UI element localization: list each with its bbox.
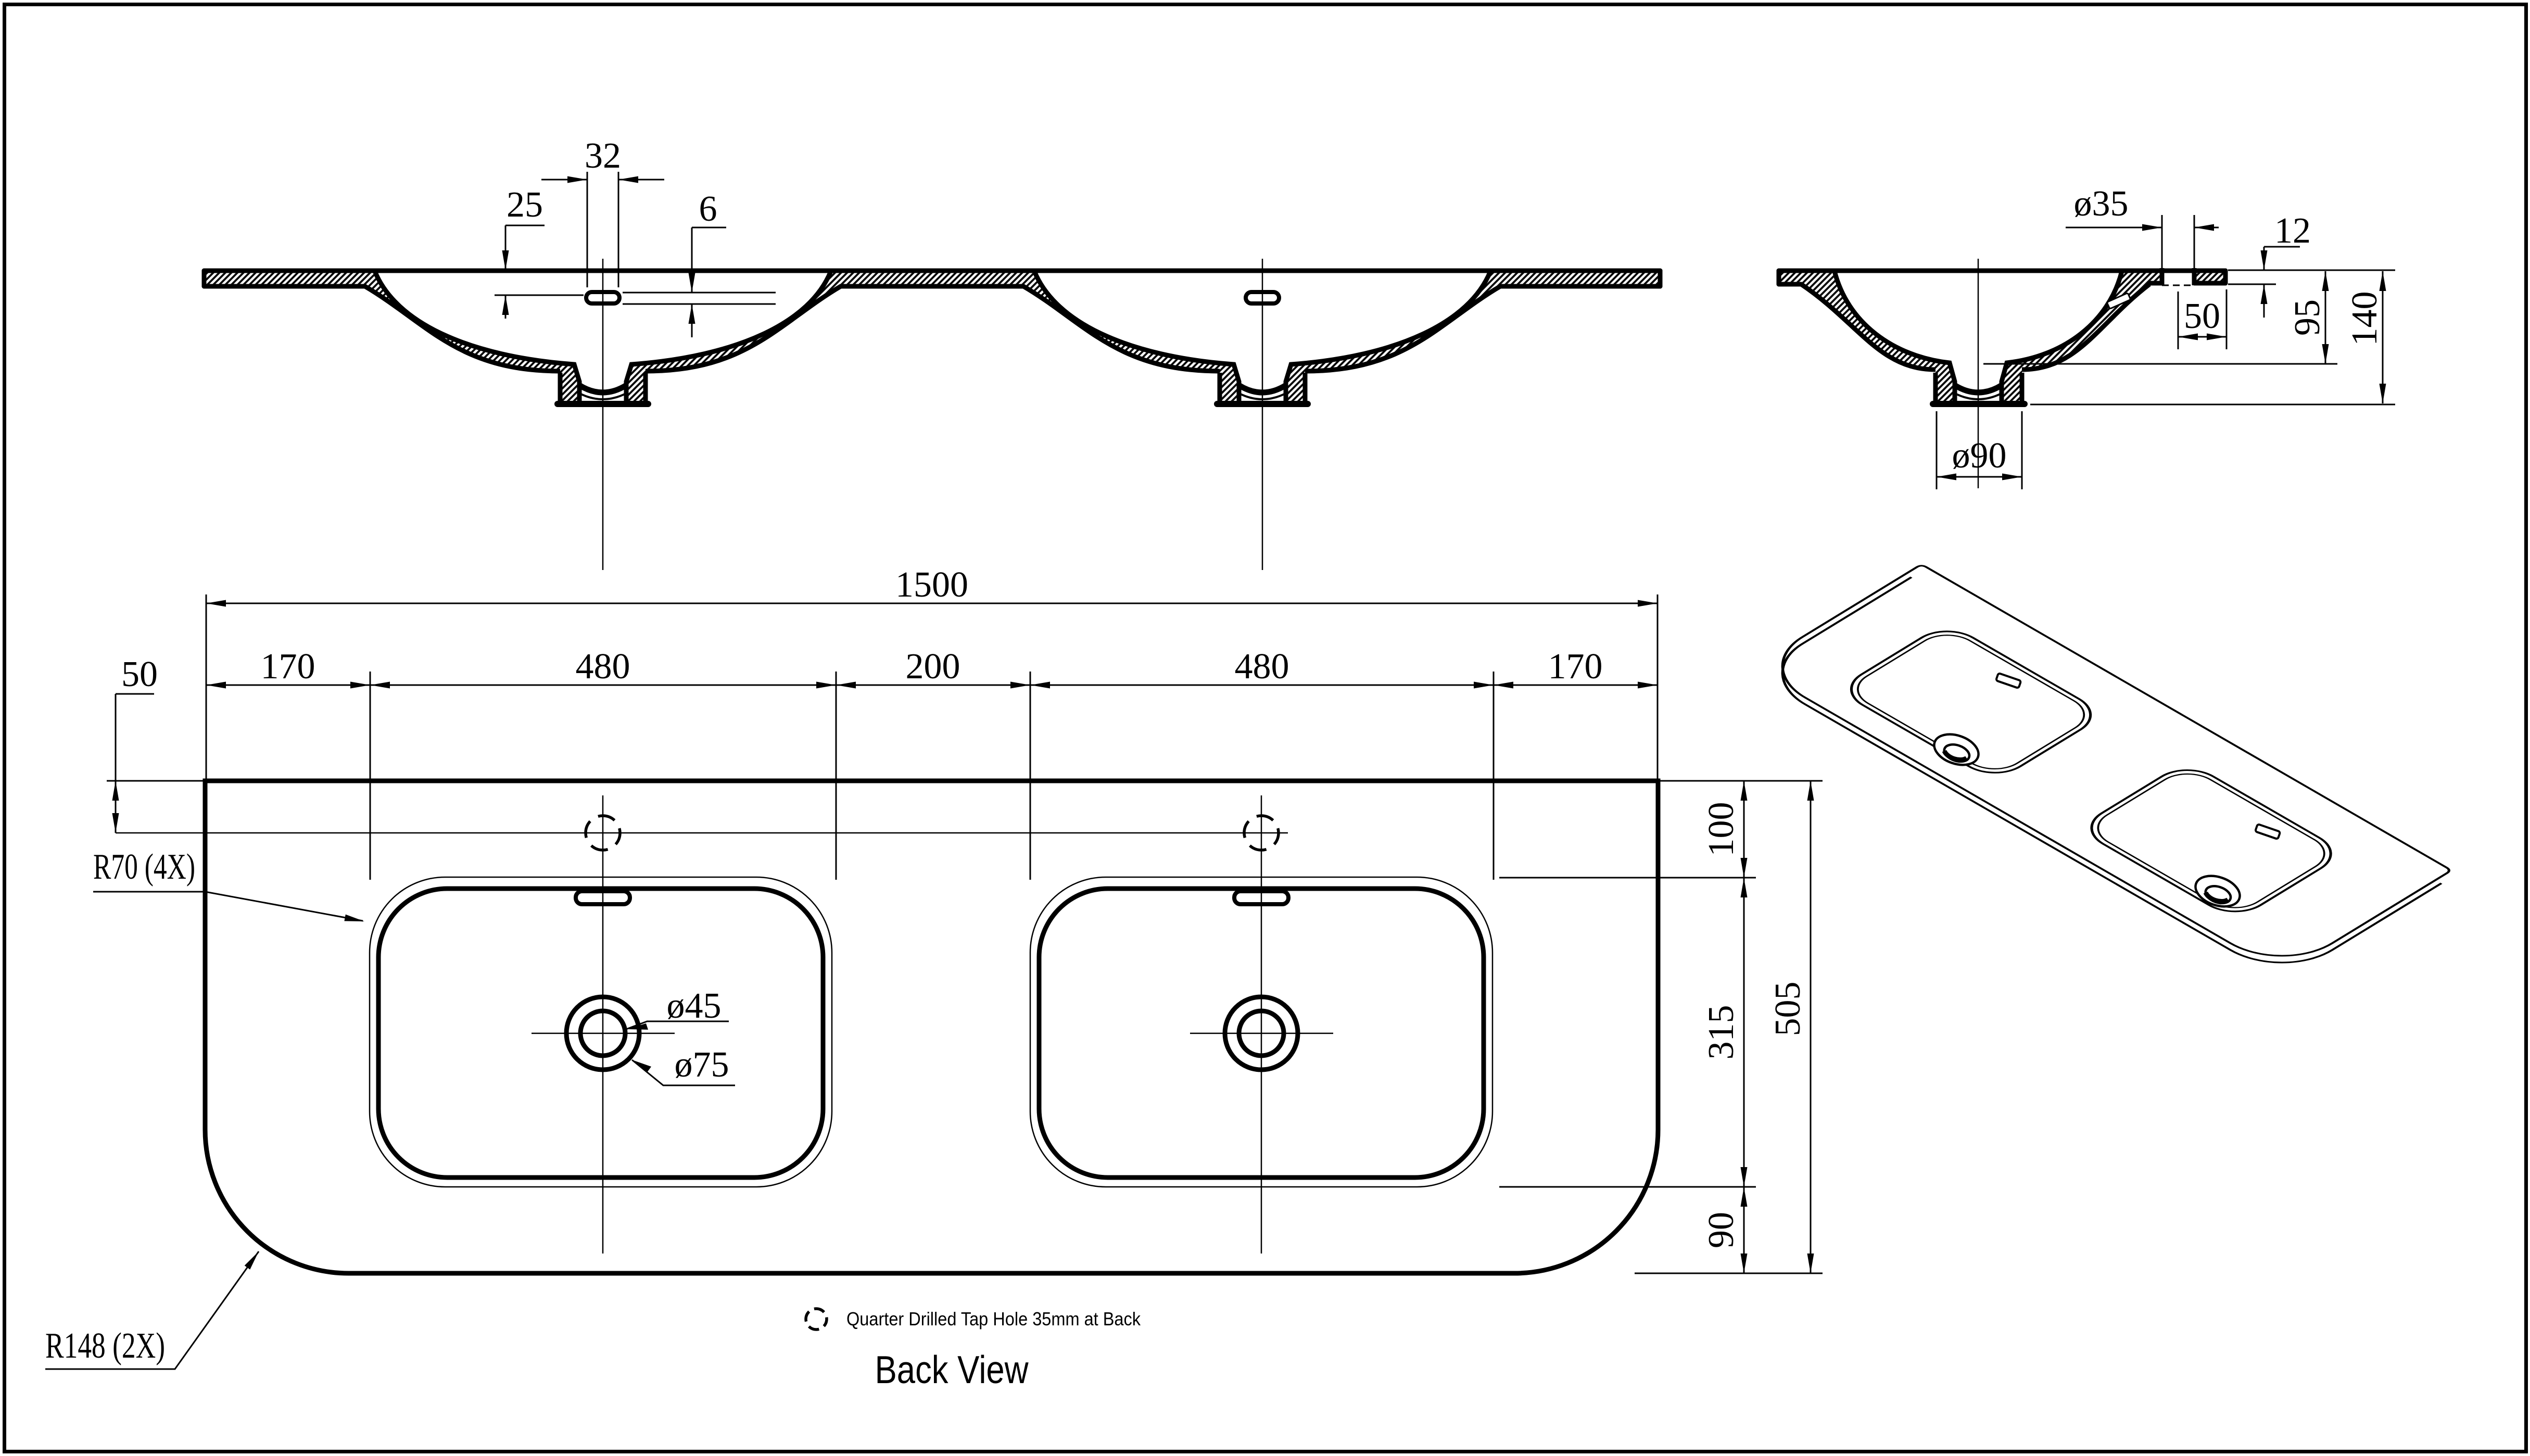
svg-text:140: 140: [2345, 292, 2385, 346]
svg-text:315: 315: [1701, 1005, 1741, 1060]
svg-text:480: 480: [576, 647, 630, 687]
svg-text:480: 480: [1235, 647, 1289, 687]
svg-text:50: 50: [121, 654, 158, 694]
svg-text:95: 95: [2287, 299, 2327, 336]
svg-text:32: 32: [585, 136, 621, 176]
svg-text:Quarter Drilled Tap Hole 35mm: Quarter Drilled Tap Hole 35mm at Back: [846, 1308, 1141, 1330]
svg-text:200: 200: [906, 647, 960, 687]
svg-text:12: 12: [2274, 211, 2311, 251]
svg-text:170: 170: [261, 647, 315, 687]
svg-text:ø35: ø35: [2074, 184, 2129, 224]
svg-text:ø45: ø45: [667, 986, 722, 1026]
svg-text:R148 (2X): R148 (2X): [45, 1326, 165, 1366]
svg-text:ø90: ø90: [1952, 436, 2007, 476]
svg-text:505: 505: [1768, 982, 1808, 1036]
svg-text:1500: 1500: [895, 565, 968, 605]
svg-text:25: 25: [507, 185, 543, 225]
svg-text:100: 100: [1701, 802, 1741, 857]
svg-text:ø75: ø75: [675, 1045, 729, 1085]
svg-text:50: 50: [2184, 296, 2220, 336]
svg-text:170: 170: [1548, 647, 1603, 687]
svg-text:90: 90: [1701, 1212, 1741, 1248]
svg-text:R70 (4X): R70 (4X): [93, 847, 195, 887]
svg-text:6: 6: [699, 189, 717, 229]
svg-text:Back View: Back View: [875, 1348, 1029, 1391]
